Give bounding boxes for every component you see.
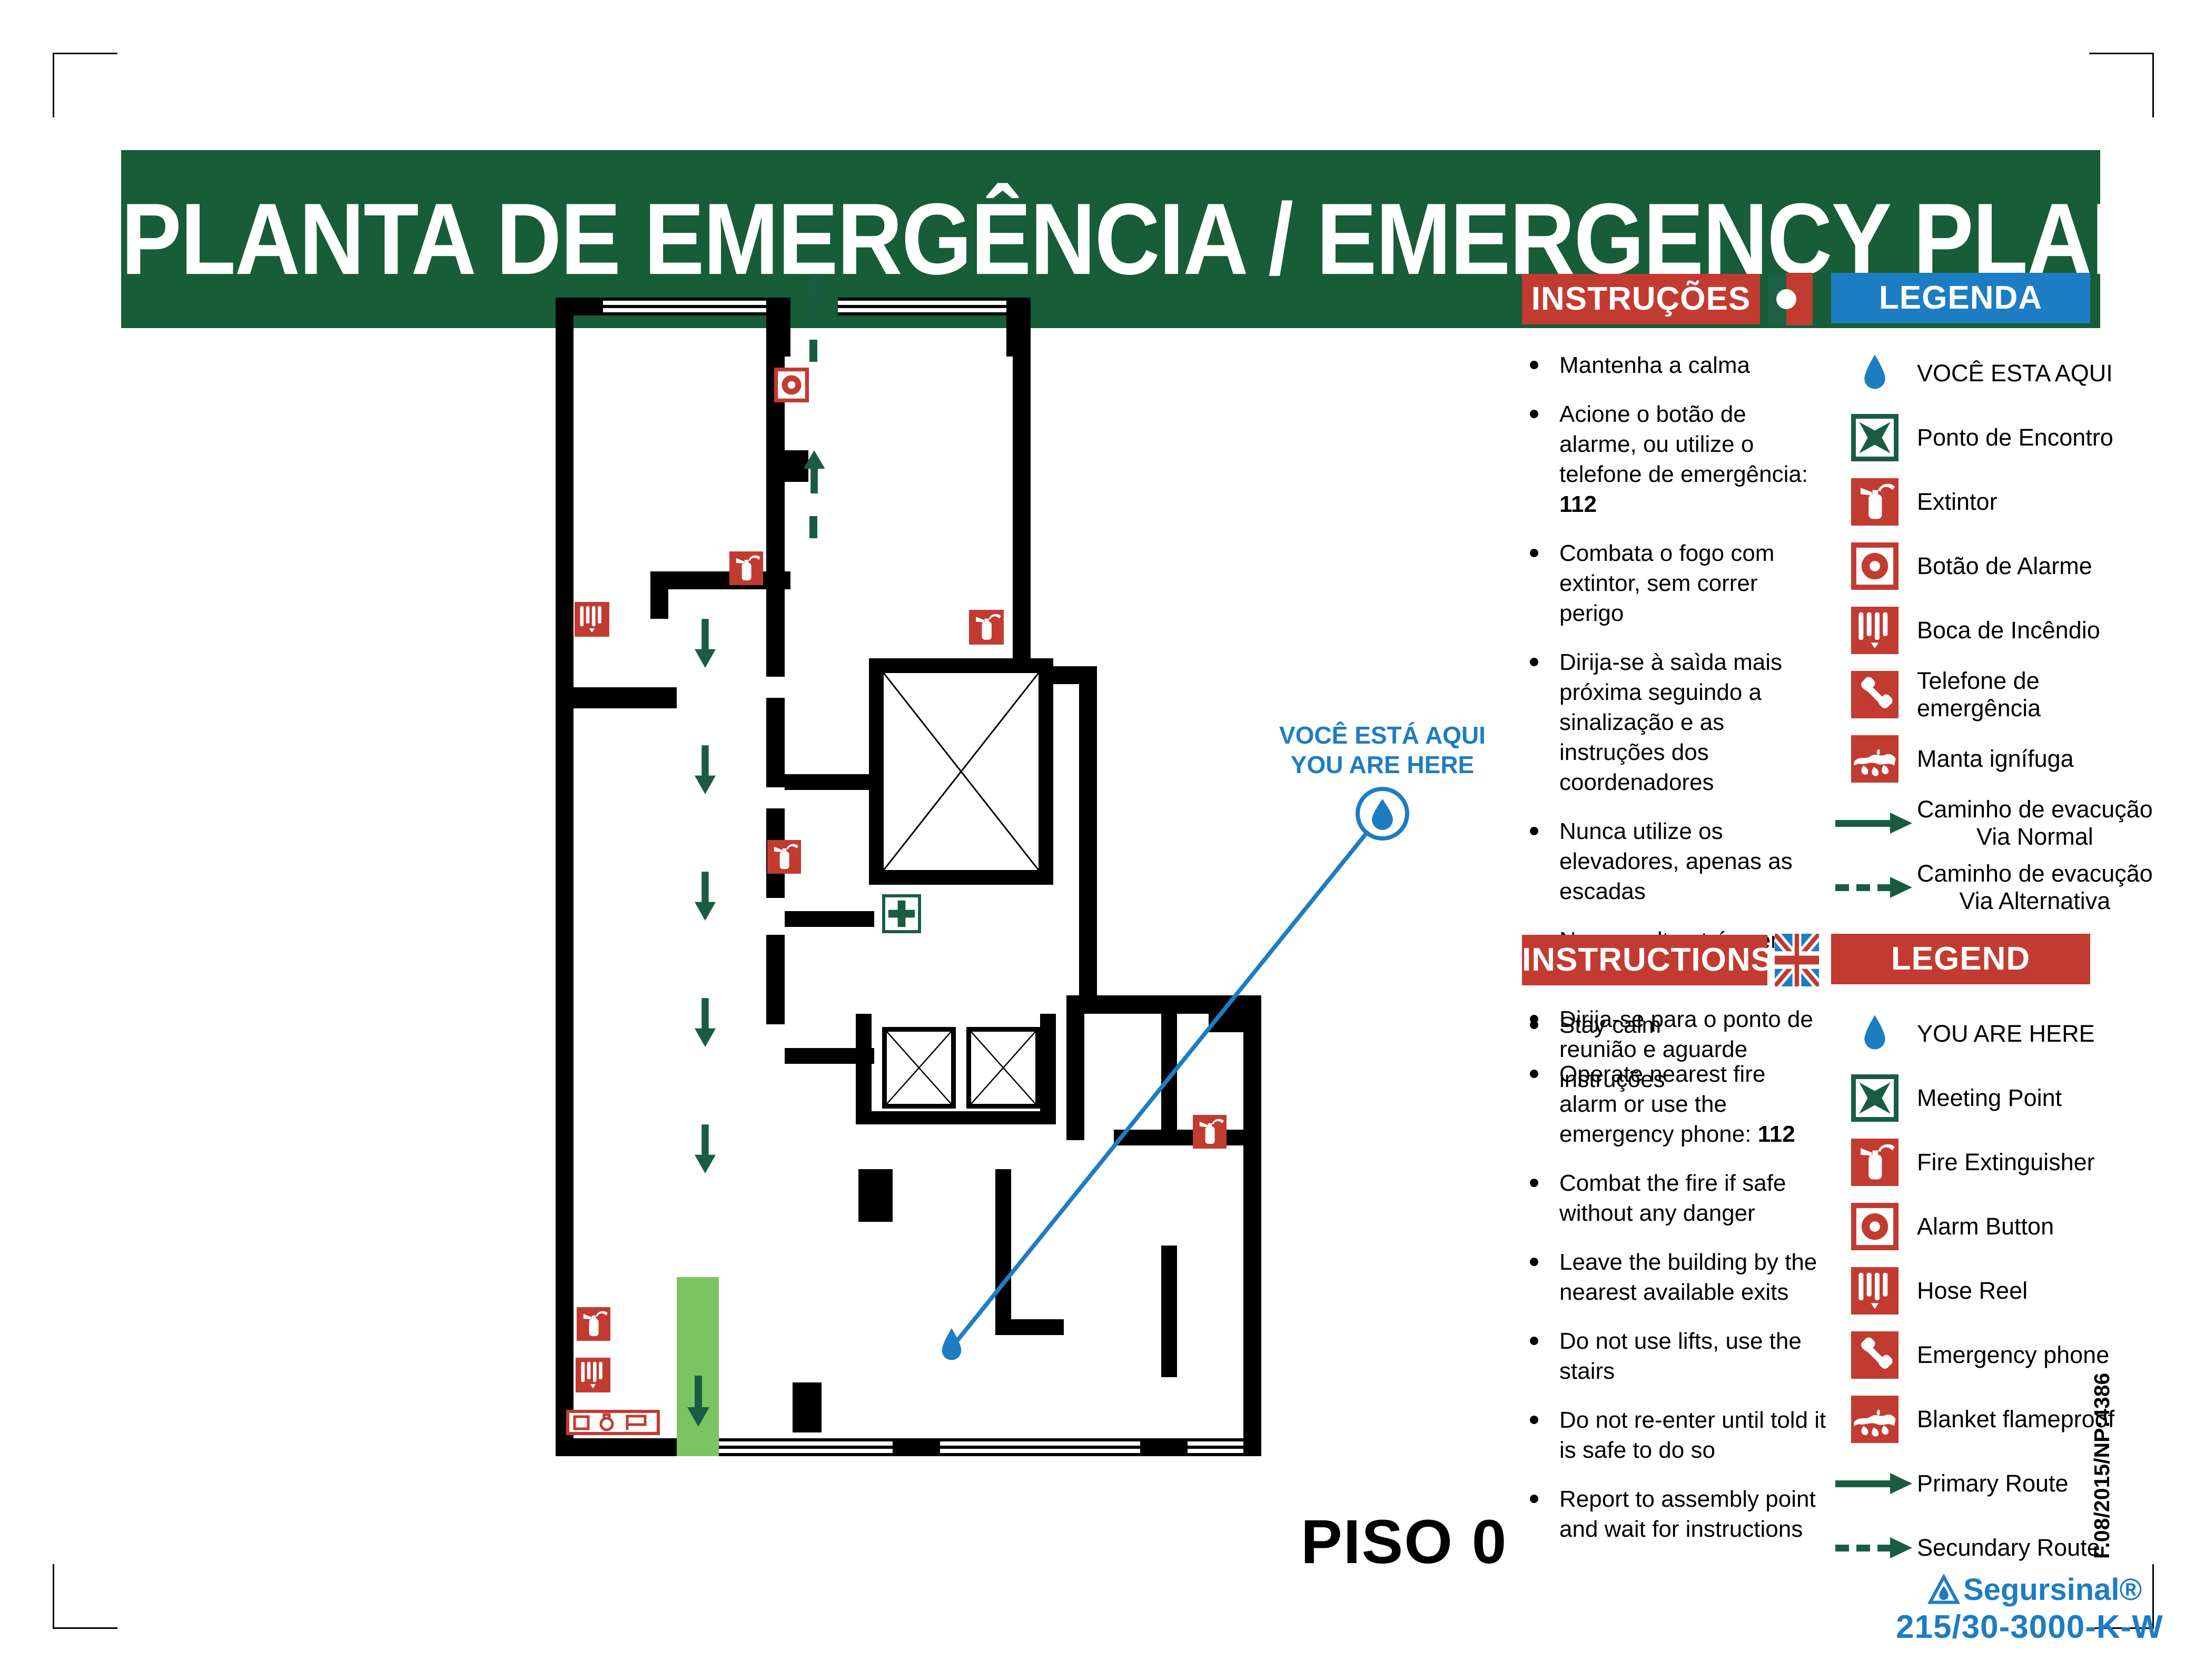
cropmark-tr xyxy=(2089,53,2154,117)
elevator-2 xyxy=(966,1027,1040,1109)
instruction-text: Combata o fogo com extintor, sem correr … xyxy=(1559,538,1817,628)
bullet-dot xyxy=(1530,1495,1538,1503)
stair-shaft xyxy=(869,658,1053,885)
wall xyxy=(1066,1014,1084,1140)
wall xyxy=(556,1438,677,1456)
you-are-here-droplet-icon xyxy=(1860,351,1890,396)
wall xyxy=(856,1111,1056,1124)
wall xyxy=(1161,1014,1177,1130)
map-fire-extinguisher-icon xyxy=(729,545,763,591)
map-fire-extinguisher-icon xyxy=(1193,1109,1227,1155)
legend-row: Ponto de Encontro xyxy=(1833,406,2170,470)
brand-name: Segursinal® xyxy=(1963,1572,2142,1607)
wall xyxy=(1013,315,1031,684)
instruction-text: Nunca utilize os elevadores, apenas as e… xyxy=(1559,816,1817,906)
legend-label: Ponto de Encontro xyxy=(1917,424,2113,451)
hose-reel-icon xyxy=(1851,607,1899,654)
instruction-text: Report to assembly point and wait for in… xyxy=(1559,1484,1827,1544)
legend-icon-cell xyxy=(1833,478,1917,526)
instruction-item: Stay calm xyxy=(1530,1010,1827,1040)
emergency-phone-icon xyxy=(1851,1331,1899,1379)
bullet-dot xyxy=(1530,1337,1538,1345)
map-arrow-down-icon xyxy=(694,1124,717,1175)
map-alarm-button-icon xyxy=(774,360,809,410)
legend-row: Caminho de evacuçãoVia Normal xyxy=(1833,791,2170,855)
legend-icon-cell xyxy=(1833,1331,1917,1379)
emergency-plan-poster: PLANTA DE EMERGÊNCIA / EMERGENCY PLAN VO… xyxy=(0,0,2205,1680)
legend-label: Boca de Incêndio xyxy=(1917,617,2100,644)
legend-icon-cell xyxy=(1833,872,1917,903)
legend-label: Fire Extinguisher xyxy=(1917,1149,2095,1176)
you-are-here-line2: YOU ARE HERE xyxy=(1291,751,1474,778)
instruction-item: Combat the fire if safe without any dang… xyxy=(1530,1168,1827,1228)
wall xyxy=(766,298,790,357)
instruction-item: Leave the building by the nearest availa… xyxy=(1530,1247,1827,1307)
window-wall xyxy=(719,1438,893,1456)
bullet-dot xyxy=(1530,1416,1538,1424)
legend-label: Manta ignífuga xyxy=(1917,745,2074,773)
legend-label: Secundary Route xyxy=(1917,1534,2100,1562)
legend-label: Caminho de evacuçãoVia Normal xyxy=(1917,796,2153,851)
instruction-text: Leave the building by the nearest availa… xyxy=(1559,1247,1827,1307)
instruction-item: Combata o fogo com extintor, sem correr … xyxy=(1530,538,1817,628)
legend-pt-list: VOCÊ ESTA AQUI Ponto de Encontro Extinto… xyxy=(1833,341,2170,920)
window-wall xyxy=(1188,1438,1243,1456)
legend-icon-cell xyxy=(1833,807,1917,839)
legend-label: Alarm Button xyxy=(1917,1213,2054,1240)
legend-icon-cell xyxy=(1833,1468,1917,1499)
instruction-text: Operate nearest fire alarm or use the em… xyxy=(1559,1059,1827,1149)
bullet-dot xyxy=(1530,1070,1538,1078)
legend-icon-cell xyxy=(1833,1267,1917,1315)
legend-en-header: LEGEND xyxy=(1831,934,2090,984)
floor-label: PISO 0 xyxy=(1301,1506,1507,1578)
instruction-item: Do not use lifts, use the stairs xyxy=(1530,1326,1827,1386)
window-wall xyxy=(838,298,1006,315)
route-dash xyxy=(809,340,817,362)
window-wall xyxy=(603,298,766,315)
route-primary-icon xyxy=(1835,807,1914,839)
legend-label: Extintor xyxy=(1917,488,1998,516)
legend-icon-cell xyxy=(1833,671,1917,718)
you-are-here-droplet-icon xyxy=(1860,1012,1890,1056)
wall xyxy=(995,1319,1064,1335)
legend-label: Meeting Point xyxy=(1917,1084,2062,1112)
legend-pt-title: LEGENDA xyxy=(1831,273,2090,323)
instruction-item: Acione o botão de alarme, ou utilize o t… xyxy=(1530,399,1817,519)
bullet-dot xyxy=(1530,549,1538,557)
cropmark-tl xyxy=(53,53,117,117)
wall xyxy=(1161,1246,1177,1377)
alarm-button-icon xyxy=(1851,1203,1899,1250)
wall xyxy=(785,911,874,927)
legend-label: YOU ARE HERE xyxy=(1917,1020,2095,1047)
emergency-phone-icon xyxy=(1851,671,1899,718)
legend-row: Hose Reel xyxy=(1833,1259,2170,1323)
instruction-text: Stay calm xyxy=(1559,1010,1661,1040)
legend-icon-cell xyxy=(1833,735,1917,783)
legend-icon-cell xyxy=(1833,542,1917,590)
legend-icon-cell xyxy=(1833,1203,1917,1250)
wall xyxy=(766,698,785,787)
wall xyxy=(556,298,574,1456)
instructions-en-list: Stay calm Operate nearest fire alarm or … xyxy=(1530,1010,1827,1563)
legend-row: VOCÊ ESTA AQUI xyxy=(1833,341,2170,406)
floor-plan xyxy=(556,298,1261,1456)
route-secondary-icon xyxy=(1835,1532,1914,1564)
instructions-en-header: INSTRUCTIONS xyxy=(1522,935,1767,985)
wall xyxy=(556,687,677,708)
instruction-text: Acione o botão de alarme, ou utilize o t… xyxy=(1559,399,1817,519)
brand-flame-icon xyxy=(1927,1574,1960,1606)
cropmark-bl xyxy=(53,1564,117,1629)
map-arrow-down-icon xyxy=(694,619,717,669)
legend-icon-cell xyxy=(1833,351,1917,396)
fire-extinguisher-icon xyxy=(1851,478,1899,526)
legend-row: Alarm Button xyxy=(1833,1194,2170,1259)
alarm-button-icon xyxy=(1851,542,1899,590)
wall xyxy=(650,571,668,619)
wall xyxy=(793,1382,822,1432)
legend-icon-cell xyxy=(1833,414,1917,461)
route-secondary-icon xyxy=(1835,872,1914,903)
map-mini-sign-icon xyxy=(566,1410,660,1435)
map-fire-extinguisher-icon xyxy=(767,834,801,880)
bullet-dot xyxy=(1530,361,1538,369)
wall xyxy=(1243,995,1261,1456)
fire-blanket-icon xyxy=(1851,1396,1899,1443)
uk-flag-icon xyxy=(1775,934,1819,986)
bullet-dot xyxy=(1530,410,1538,418)
wall xyxy=(858,1169,893,1222)
brand-block: Segursinal® 215/30-3000-K-W xyxy=(1896,1572,2191,1646)
instructions-pt-title: INSTRUÇÕES xyxy=(1522,274,1760,324)
map-arrow-down-icon xyxy=(694,872,717,922)
legend-label: VOCÊ ESTA AQUI xyxy=(1917,360,2113,387)
you-are-here-label: VOCÊ ESTÁ AQUI YOU ARE HERE xyxy=(1253,720,1511,779)
instruction-text: Do not use lifts, use the stairs xyxy=(1559,1326,1827,1386)
meeting-point-icon xyxy=(1851,1074,1899,1122)
legend-pt-header: LEGENDA xyxy=(1831,273,2090,323)
legend-row: YOU ARE HERE xyxy=(1833,1002,2170,1066)
wall xyxy=(785,774,874,790)
legend-icon-cell xyxy=(1833,1532,1917,1564)
wall xyxy=(766,935,785,1024)
legend-row: Manta ignífuga xyxy=(1833,727,2170,791)
hose-reel-icon xyxy=(1851,1267,1899,1315)
fire-extinguisher-icon xyxy=(1851,1139,1899,1186)
meeting-point-icon xyxy=(1851,414,1899,461)
wall xyxy=(1040,1014,1056,1124)
elevator-1 xyxy=(882,1027,956,1109)
instruction-item: Dirija-se à saìda mais próxima seguindo … xyxy=(1530,647,1817,797)
legend-label: Botão de Alarme xyxy=(1917,552,2092,580)
map-hose-reel-icon xyxy=(575,595,609,644)
wall xyxy=(995,1169,1011,1327)
wall xyxy=(1140,1438,1188,1456)
legend-label: Hose Reel xyxy=(1917,1277,2028,1305)
bullet-dot xyxy=(1530,1021,1538,1029)
map-arrow-down-icon xyxy=(694,998,717,1049)
route-primary-icon xyxy=(1835,1468,1914,1499)
legend-icon-cell xyxy=(1833,1139,1917,1186)
map-fire-extinguisher-icon xyxy=(577,1301,610,1347)
legend-row: Meeting Point xyxy=(1833,1066,2170,1130)
legend-row: Caminho de evacuçãoVia Alternativa xyxy=(1833,855,2170,920)
legend-icon-cell xyxy=(1833,1074,1917,1122)
map-first-aid-icon xyxy=(882,893,921,935)
legend-label: Emergency phone xyxy=(1917,1341,2109,1369)
instructions-en-title: INSTRUCTIONS xyxy=(1522,935,1767,985)
map-arrow-up-icon xyxy=(802,272,826,317)
instruction-item: Do not re-enter until told it is safe to… xyxy=(1530,1405,1827,1465)
map-arrow-down-icon xyxy=(686,1371,710,1433)
wall xyxy=(1079,666,1097,1014)
map-arrow-up-icon xyxy=(802,449,826,493)
wall xyxy=(1209,995,1261,1032)
legend-label: Telefone de emergência xyxy=(1917,667,2170,722)
map-fire-extinguisher-icon xyxy=(969,603,1004,651)
legend-row: Boca de Incêndio xyxy=(1833,598,2170,663)
legend-row: Fire Extinguisher xyxy=(1833,1130,2170,1194)
legend-row: Telefone de emergência xyxy=(1833,663,2170,727)
brand-code: 215/30-3000-K-W xyxy=(1896,1608,2191,1646)
map-you-are-here-droplet-icon xyxy=(937,1326,966,1366)
instruction-item: Mantenha a calma xyxy=(1530,350,1817,380)
instruction-item: Operate nearest fire alarm or use the em… xyxy=(1530,1059,1827,1149)
wall xyxy=(893,1438,940,1456)
instructions-pt-header: INSTRUÇÕES xyxy=(1522,274,1760,324)
bullet-dot xyxy=(1530,658,1538,666)
instructions-pt-list: Mantenha a calma Acione o botão de alarm… xyxy=(1530,350,1817,1113)
instruction-item: Report to assembly point and wait for in… xyxy=(1530,1484,1827,1544)
map-arrow-down-icon xyxy=(694,745,717,796)
bullet-dot xyxy=(1530,827,1538,835)
legend-row: Extintor xyxy=(1833,470,2170,534)
doc-reference: F.08/2015/NP:4386 xyxy=(2090,1317,2127,1559)
legend-label: Primary Route xyxy=(1917,1470,2069,1497)
legend-label: Blanket flameproof xyxy=(1917,1406,2114,1433)
window-wall xyxy=(940,1438,1140,1456)
bullet-dot xyxy=(1530,1258,1538,1266)
legend-label: Caminho de evacuçãoVia Alternativa xyxy=(1917,860,2153,915)
instruction-text: Dirija-se à saìda mais próxima seguindo … xyxy=(1559,647,1817,797)
fire-blanket-icon xyxy=(1851,735,1899,783)
legend-en-title: LEGEND xyxy=(1831,934,2090,984)
instruction-item: Nunca utilize os elevadores, apenas as e… xyxy=(1530,816,1817,906)
legend-row: Botão de Alarme xyxy=(1833,534,2170,598)
route-dash xyxy=(809,516,817,538)
legend-icon-cell xyxy=(1833,1012,1917,1056)
bullet-dot xyxy=(1530,1179,1538,1187)
legend-icon-cell xyxy=(1833,607,1917,654)
portugal-flag-icon xyxy=(1768,273,1813,325)
instruction-text: Do not re-enter until told it is safe to… xyxy=(1559,1405,1827,1465)
legend-icon-cell xyxy=(1833,1396,1917,1443)
map-hose-reel-icon xyxy=(576,1351,610,1399)
instruction-text: Mantenha a calma xyxy=(1559,350,1750,380)
you-are-here-line1: VOCÊ ESTÁ AQUI xyxy=(1279,722,1486,749)
wall xyxy=(1114,1130,1261,1145)
instruction-text: Combat the fire if safe without any dang… xyxy=(1559,1168,1827,1228)
wall xyxy=(856,1014,872,1124)
